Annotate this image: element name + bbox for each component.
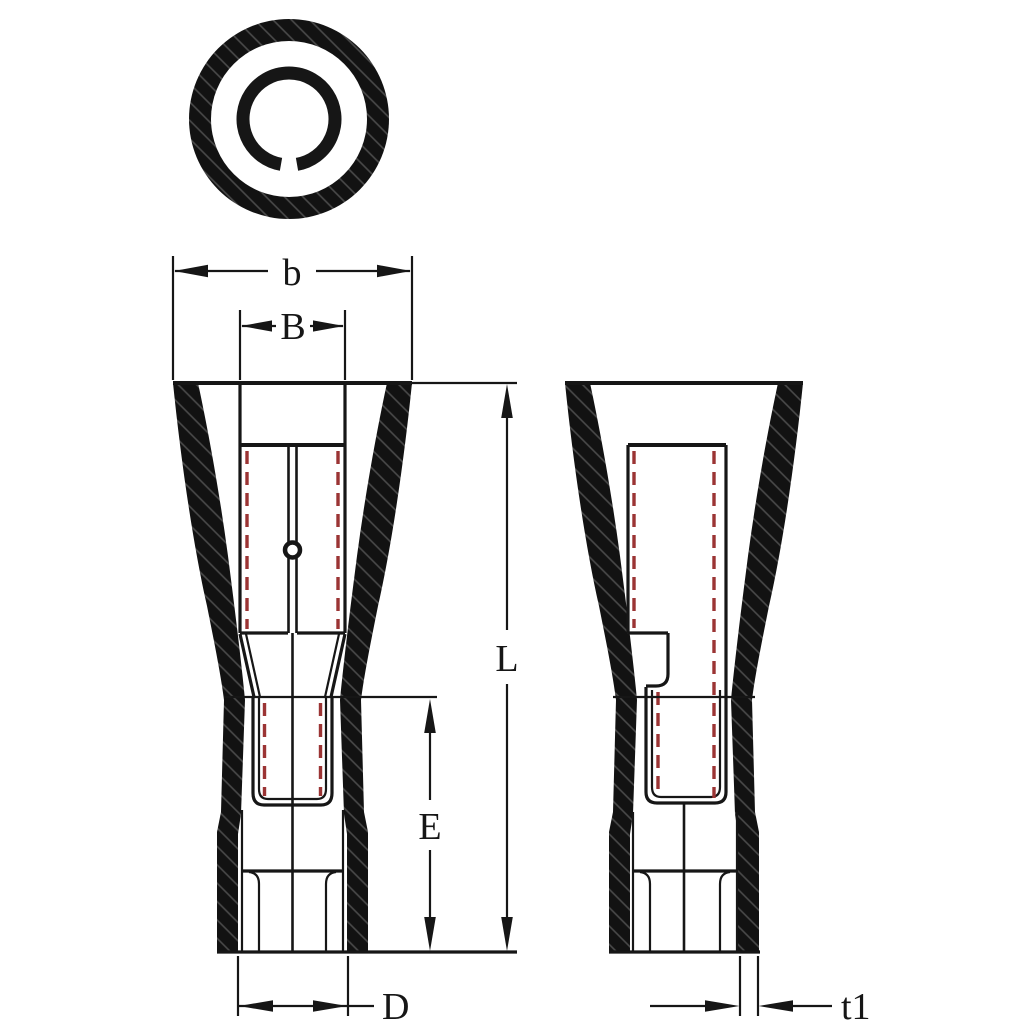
dim-b-arrow-right <box>377 265 411 277</box>
terminal-drawing: b B <box>0 0 1024 1024</box>
side-view-barrel-inner <box>652 690 720 797</box>
dim-L-arrow-top <box>501 384 513 418</box>
dim-b-arrow-left <box>174 265 208 277</box>
end-view <box>189 19 389 219</box>
drawing-canvas: b B <box>0 0 1024 1024</box>
side-view <box>565 383 803 952</box>
dimension-L: L <box>495 384 518 951</box>
dim-D-arrow-right <box>313 1000 347 1012</box>
front-view-receptacle-sides <box>240 383 345 633</box>
dimension-D: D <box>238 956 409 1024</box>
front-view-contact-slot <box>289 447 297 633</box>
side-view-insulation-left-wall <box>565 383 637 952</box>
side-view-insulation-right-wall <box>731 383 803 952</box>
dim-B-arrow-right <box>313 320 344 331</box>
dim-b-label: b <box>283 252 302 294</box>
dim-E-label: E <box>418 806 441 848</box>
dim-E-arrow-top <box>424 699 436 733</box>
dim-t1-arrow-right <box>759 1000 794 1012</box>
dim-E-arrow-bottom <box>424 917 436 951</box>
front-view-insulation-left-wall <box>173 383 245 952</box>
dimension-E: E <box>418 699 441 951</box>
dim-t1-label: t1 <box>841 986 871 1024</box>
dim-L-arrow-bottom <box>501 917 513 951</box>
dim-D-arrow-left <box>239 1000 273 1012</box>
dimension-t1: t1 <box>650 956 871 1024</box>
dim-B-arrow-left <box>241 320 272 331</box>
dim-B-label: B <box>280 306 305 348</box>
front-view-dimple <box>285 543 300 558</box>
dim-D-label: D <box>382 986 409 1024</box>
front-view <box>173 383 517 952</box>
dim-t1-extension-lines <box>740 956 758 1016</box>
dimension-B: B <box>240 306 345 380</box>
end-view-outer-ring-bore <box>211 41 367 197</box>
front-view-insulation-right-wall <box>340 383 412 952</box>
dim-t1-arrow-left <box>705 1000 740 1012</box>
dim-L-label: L <box>495 638 518 680</box>
